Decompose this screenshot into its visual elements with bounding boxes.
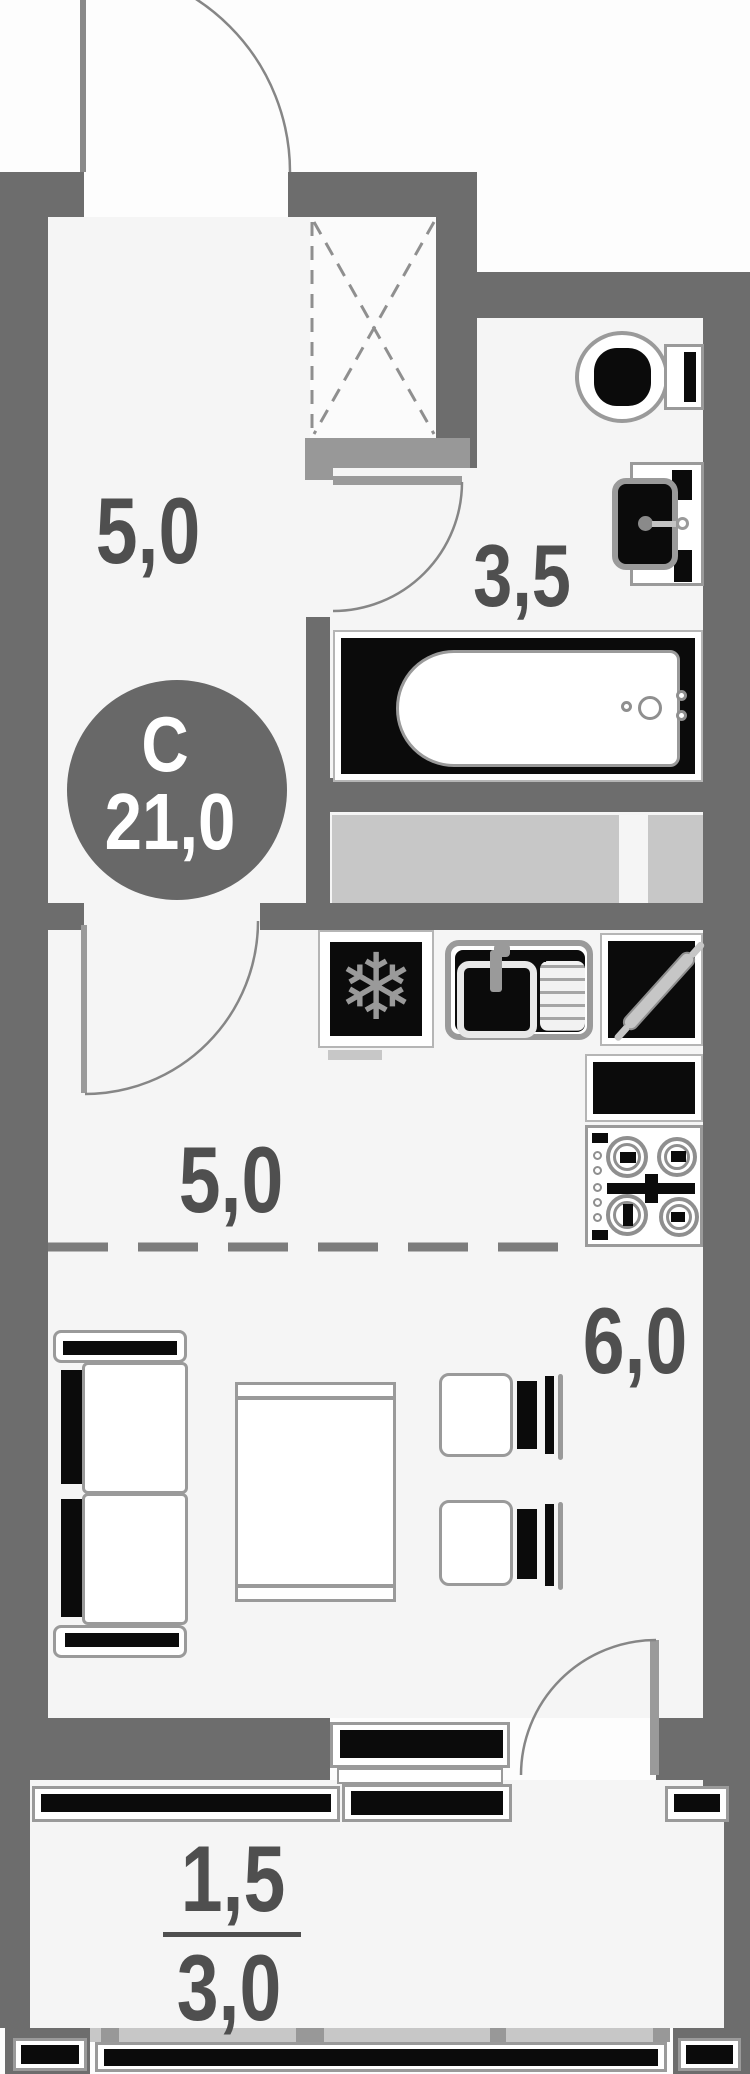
stove-burner-3-mark — [623, 1204, 633, 1226]
chair-2-back-a — [517, 1509, 537, 1579]
toilet-bowl-fill — [594, 348, 651, 406]
balcony-window-unit-fill — [340, 1730, 503, 1758]
chair-1-seat — [439, 1373, 513, 1457]
rail-post-3 — [490, 2028, 506, 2042]
rail-post-4 — [653, 2028, 670, 2042]
hall-kitchen-wall-right — [260, 903, 750, 930]
glazing-panel-left-fill — [41, 1794, 331, 1812]
toilet-tank-fill — [684, 352, 696, 402]
kitchen-faucet-knob — [494, 944, 510, 957]
north-letter: С — [141, 705, 188, 783]
glazing-panel-mid-fill — [351, 1791, 503, 1815]
balcony-right-wall — [724, 1822, 750, 2028]
stove-knob-4 — [593, 1198, 602, 1207]
shaft-right-wall — [436, 172, 477, 468]
washbasin-faucet-ring — [676, 517, 689, 530]
living-area-label: 6,0 — [583, 1294, 688, 1388]
entry-door-arc — [84, 0, 290, 172]
balcony-corner-window-left-fill — [21, 2045, 79, 2064]
oven-fill — [593, 1062, 695, 1114]
left-outer-wall — [0, 172, 48, 1780]
stove-burner-1-mark — [620, 1152, 636, 1163]
total-area-label: 21,0 — [105, 782, 236, 862]
table — [235, 1382, 396, 1602]
stove-cross-v — [645, 1174, 658, 1203]
shaft-bottom-stub — [305, 464, 333, 480]
chair-1-back-b — [545, 1376, 554, 1454]
hall-kitchen-wall-left — [48, 903, 84, 930]
bathtub-ring-left — [621, 701, 632, 712]
chair-2-back-b — [545, 1504, 554, 1586]
chair-2-seat — [439, 1500, 513, 1586]
chair-1-back-edge — [558, 1374, 563, 1460]
right-outer-wall — [703, 272, 750, 1822]
hallway-area-label: 5,0 — [96, 484, 201, 578]
rail-post-2 — [296, 2028, 324, 2042]
washbasin-faucet-knob — [638, 516, 653, 531]
sofa-armrest-bottom-fill — [65, 1633, 179, 1647]
bathroom-door-leaf — [333, 476, 462, 485]
bathroom-area-label: 3,5 — [473, 532, 571, 620]
sofa-seat-2 — [82, 1493, 188, 1625]
stove-knob-3 — [593, 1183, 602, 1192]
chair-2-back-edge — [558, 1502, 563, 1590]
bathroom-bottom-wall — [330, 778, 750, 812]
sofa-seat-1 — [82, 1362, 188, 1494]
table-edge-top — [238, 1396, 393, 1400]
floor-plan: ❄ — [0, 0, 750, 2074]
stove-knob-5 — [593, 1213, 602, 1222]
kitchen-sink-chip — [535, 950, 546, 962]
bathroom-left-wall — [306, 617, 330, 930]
entry-door-leaf — [80, 0, 86, 172]
balcony-left-wall — [0, 1780, 30, 2028]
rail-post-1 — [101, 2028, 119, 2042]
stove-chip-tl — [592, 1133, 608, 1143]
hall-door-leaf — [81, 925, 87, 1093]
table-edge-bottom — [238, 1584, 393, 1588]
balcony-full-label: 3,0 — [177, 1941, 282, 2035]
kitchen-sink-drainboard — [540, 961, 585, 1031]
balcony-front-glazing-fill — [104, 2049, 658, 2066]
stove-chip-bl — [592, 1230, 608, 1240]
balcony-window-sill — [337, 1768, 503, 1784]
sofa-back-2 — [61, 1499, 82, 1617]
living-bottom-wall-left — [0, 1718, 330, 1780]
living-bottom-wall-stub — [656, 1718, 703, 1780]
bathtub-tap-top — [676, 690, 687, 701]
stove-knob-2 — [593, 1166, 602, 1175]
sofa-back-1 — [61, 1370, 82, 1484]
balcony-door-leaf — [650, 1640, 659, 1775]
bathtub-drain — [638, 696, 662, 720]
washbasin-faucet-stem — [652, 521, 676, 527]
balcony-corner-window-right-fill — [686, 2045, 733, 2064]
balcony-coeff-label: 1,5 — [181, 1832, 286, 1926]
stove-burner-2-mark — [671, 1151, 686, 1162]
kitchen-counter-left — [332, 815, 619, 903]
chair-1-back-a — [517, 1381, 537, 1449]
kitchen-area-label: 5,0 — [179, 1133, 284, 1227]
stove-burner-4-mark — [671, 1212, 685, 1222]
bathtub-tap-bottom — [676, 710, 687, 721]
ventilation-shaft — [310, 217, 436, 438]
sofa-armrest-top-fill — [63, 1341, 177, 1355]
stove-knob-1 — [593, 1151, 602, 1160]
kitchen-counter-right — [648, 815, 703, 903]
fridge-handle — [328, 1050, 382, 1060]
glazing-panel-right-fill — [674, 1794, 720, 1812]
